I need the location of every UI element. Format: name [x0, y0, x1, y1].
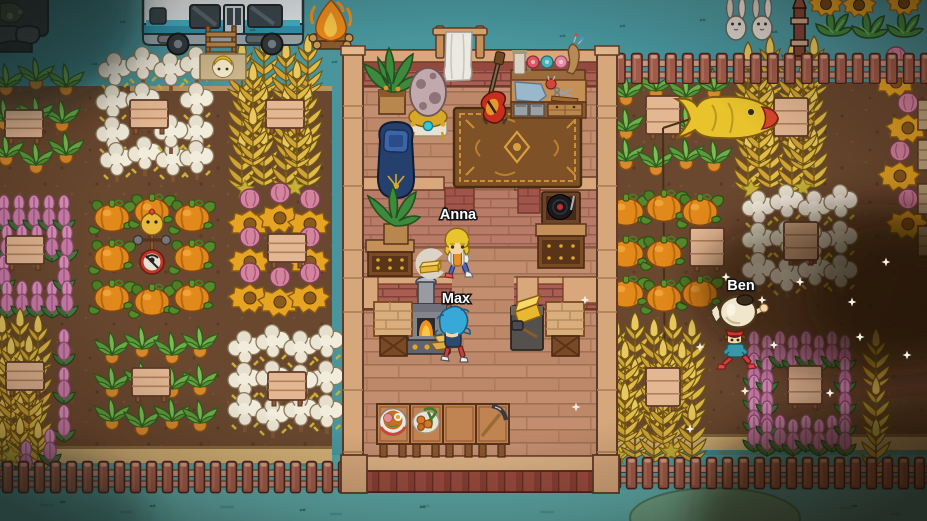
svg-text:Anna: Anna	[440, 207, 477, 223]
svg-text:Max: Max	[442, 291, 470, 307]
svg-text:Ben: Ben	[727, 278, 754, 294]
